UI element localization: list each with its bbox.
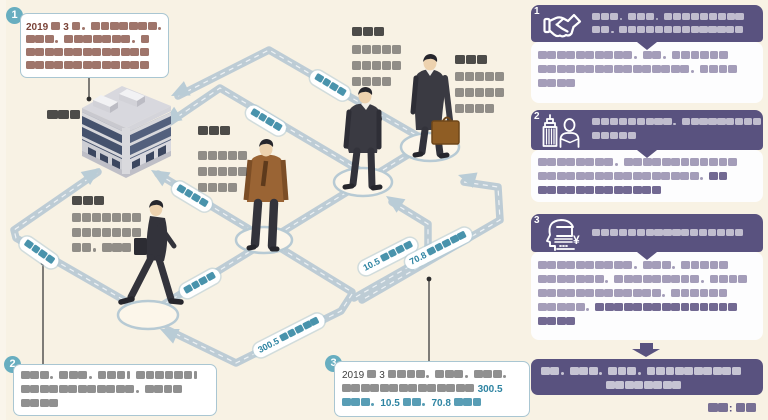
svg-text:¥: ¥ [573, 233, 580, 247]
